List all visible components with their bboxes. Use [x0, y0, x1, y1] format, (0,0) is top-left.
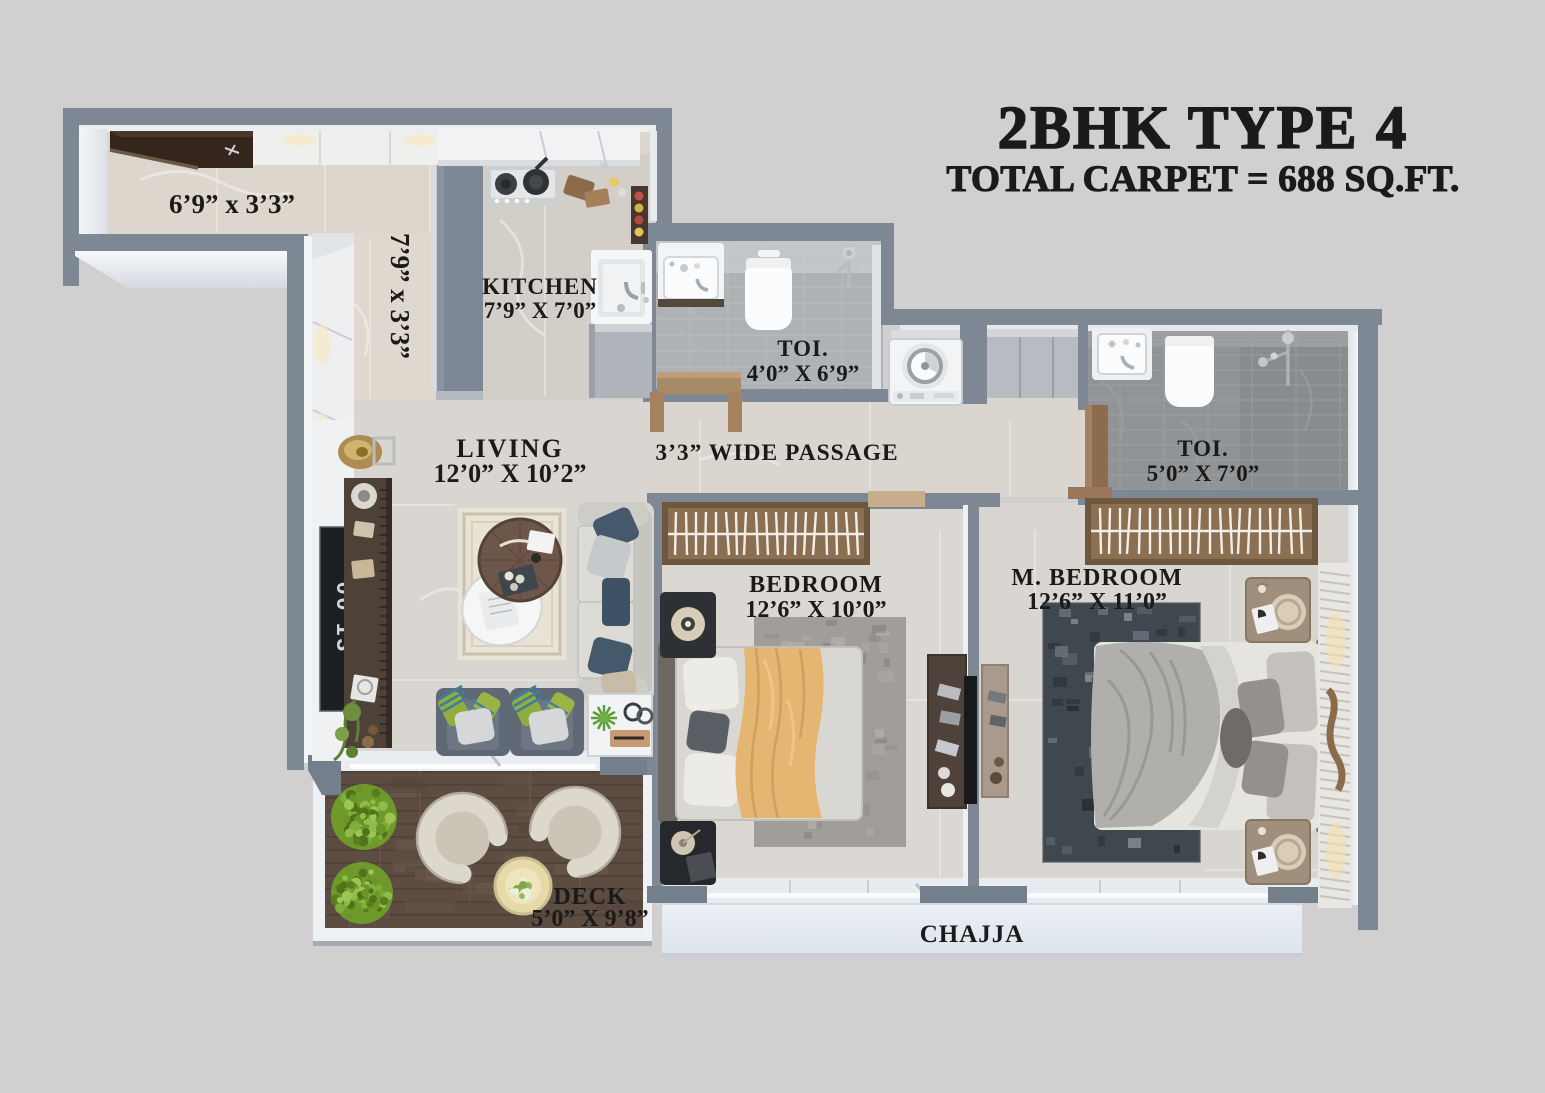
svg-text:4’0” X 6’9”: 4’0” X 6’9” — [747, 361, 859, 386]
svg-text:BEDROOM: BEDROOM — [749, 572, 883, 598]
svg-text:12’6” X 11’0”: 12’6” X 11’0” — [1027, 589, 1167, 615]
svg-text:M. BEDROOM: M. BEDROOM — [1011, 565, 1182, 591]
svg-text:7’9” x 3’3”: 7’9” x 3’3” — [385, 233, 415, 359]
svg-text:CHAJJA: CHAJJA — [920, 921, 1025, 948]
svg-text:5’0” X 9’8”: 5’0” X 9’8” — [531, 906, 648, 932]
svg-text:TOTAL CARPET = 688 SQ.FT.: TOTAL CARPET = 688 SQ.FT. — [946, 159, 1459, 200]
svg-text:3’3” WIDE PASSAGE: 3’3” WIDE PASSAGE — [655, 440, 898, 466]
svg-text:12’6” X 10’0”: 12’6” X 10’0” — [745, 597, 886, 623]
svg-text:TOI.: TOI. — [1177, 436, 1229, 461]
svg-text:5’0” X 7’0”: 5’0” X 7’0” — [1147, 461, 1259, 486]
svg-text:12’0” X 10’2”: 12’0” X 10’2” — [433, 459, 586, 488]
svg-text:7’9” X 7’0”: 7’9” X 7’0” — [484, 298, 596, 323]
svg-text:2BHK TYPE 4: 2BHK TYPE 4 — [998, 95, 1409, 162]
svg-text:KITCHEN: KITCHEN — [482, 274, 598, 299]
svg-text:TOI.: TOI. — [777, 336, 829, 361]
svg-text:6’9” x 3’3”: 6’9” x 3’3” — [169, 189, 295, 219]
